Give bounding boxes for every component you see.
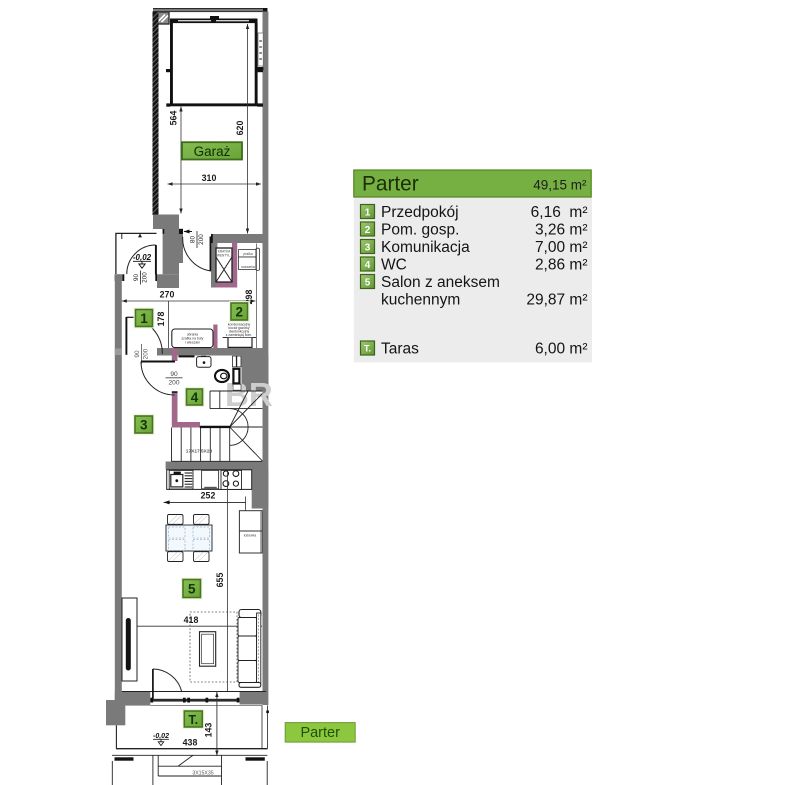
svg-text:564: 564 bbox=[169, 111, 179, 126]
svg-text:438: 438 bbox=[183, 738, 198, 748]
svg-text:1: 1 bbox=[365, 207, 371, 218]
svg-text:pralka: pralka bbox=[243, 252, 252, 256]
svg-text:4: 4 bbox=[365, 260, 371, 271]
svg-text:3,26 m²: 3,26 m² bbox=[535, 222, 588, 239]
svg-text:Salon z aneksem: Salon z aneksem bbox=[381, 274, 500, 291]
svg-text:200: 200 bbox=[143, 348, 150, 359]
svg-text:WC: WC bbox=[381, 257, 407, 274]
svg-text:Taras: Taras bbox=[381, 341, 419, 358]
svg-text:200: 200 bbox=[142, 272, 149, 283]
svg-text:i wieszaki: i wieszaki bbox=[185, 341, 200, 345]
svg-text:3X15X35: 3X15X35 bbox=[192, 771, 213, 777]
svg-text:90: 90 bbox=[134, 350, 141, 358]
svg-text:17X17,5X28: 17X17,5X28 bbox=[186, 449, 213, 455]
svg-text:Komunikacja: Komunikacja bbox=[381, 239, 470, 256]
svg-text:252: 252 bbox=[201, 491, 216, 501]
svg-text:suszarka: suszarka bbox=[241, 265, 255, 269]
svg-text:Przedpokój: Przedpokój bbox=[381, 204, 459, 221]
svg-text:90: 90 bbox=[133, 274, 140, 282]
svg-text:lodówka: lodówka bbox=[244, 534, 257, 538]
svg-text:kuchennym: kuchennym bbox=[381, 292, 460, 309]
svg-text:7,00 m²: 7,00 m² bbox=[535, 239, 588, 256]
svg-text:90: 90 bbox=[170, 371, 178, 378]
svg-text:6,00 m²: 6,00 m² bbox=[535, 341, 588, 358]
svg-text:Garaż: Garaż bbox=[194, 144, 231, 159]
svg-text:2,86 m²: 2,86 m² bbox=[535, 257, 588, 274]
svg-text:3: 3 bbox=[140, 418, 148, 433]
svg-text:Parter: Parter bbox=[300, 725, 340, 741]
svg-text:270: 270 bbox=[160, 290, 175, 300]
svg-text:418: 418 bbox=[184, 615, 199, 625]
svg-text:5: 5 bbox=[188, 582, 196, 597]
svg-text:3: 3 bbox=[365, 242, 371, 253]
svg-text:5: 5 bbox=[365, 277, 371, 288]
svg-text:1: 1 bbox=[140, 311, 148, 326]
svg-text:49,15 m²: 49,15 m² bbox=[533, 178, 587, 193]
svg-text:310: 310 bbox=[202, 173, 217, 183]
svg-text:z zamkniętą kom.: z zamkniętą kom. bbox=[226, 333, 252, 337]
svg-text:200: 200 bbox=[198, 234, 205, 245]
svg-text:4: 4 bbox=[191, 390, 199, 405]
svg-text:200: 200 bbox=[168, 380, 179, 387]
svg-text:655: 655 bbox=[215, 573, 225, 588]
svg-text:80: 80 bbox=[190, 236, 197, 244]
svg-text:620: 620 bbox=[235, 121, 245, 136]
svg-text:2: 2 bbox=[365, 225, 371, 236]
svg-text:T.: T. bbox=[188, 713, 198, 727]
svg-text:143: 143 bbox=[203, 723, 213, 738]
svg-text:-0,02: -0,02 bbox=[133, 253, 152, 262]
svg-text:29,87 m²: 29,87 m² bbox=[526, 292, 587, 309]
svg-text:2: 2 bbox=[235, 305, 243, 320]
svg-text:Parter: Parter bbox=[362, 173, 419, 196]
svg-text:178: 178 bbox=[156, 312, 166, 327]
svg-text:6,16 m²: 6,16 m² bbox=[531, 204, 588, 221]
svg-text:Pom. gosp.: Pom. gosp. bbox=[381, 222, 459, 239]
svg-text:T.: T. bbox=[364, 344, 371, 354]
svg-text:WENTYL.: WENTYL. bbox=[217, 253, 231, 257]
